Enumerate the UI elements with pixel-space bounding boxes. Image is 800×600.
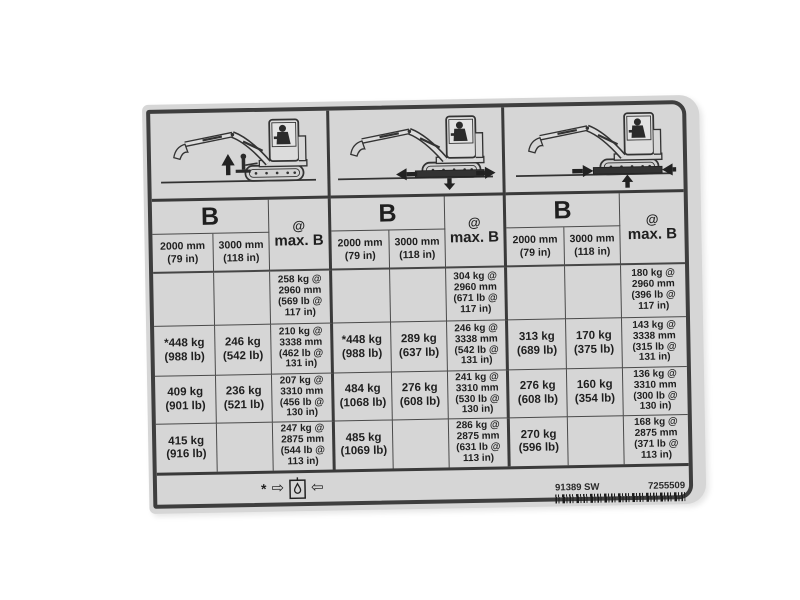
- max-b-capacity-cell: 304 kg @ 2960 mm (671 lb @ 117 in): [446, 267, 508, 321]
- capacity-cell: [214, 272, 271, 326]
- capacity-cell: 484 kg (1068 lb): [334, 372, 393, 421]
- footnote: * ⇨ ⇦: [261, 476, 324, 499]
- capacity-table: B @ max. B 2000 mm (79 in) 3000 mm (118 …: [150, 104, 688, 473]
- b-header: B: [331, 196, 446, 231]
- capacity-cell: *448 kg (988 lb): [333, 322, 392, 373]
- max-b-capacity-cell: 180 kg @ 2960 mm (396 lb @ 117 in): [621, 264, 686, 318]
- max-b-label: max. B: [450, 229, 499, 246]
- label-frame: B @ max. B 2000 mm (79 in) 3000 mm (118 …: [146, 100, 693, 509]
- lift-capacity-label: B @ max. B 2000 mm (79 in) 3000 mm (118 …: [142, 95, 706, 514]
- max-b-capacity-cell: 136 kg @ 3310 mm (300 lb @ 130 in): [623, 367, 688, 416]
- at-symbol: @: [468, 215, 481, 230]
- max-b-capacity-cell: 241 kg @ 3310 mm (530 lb @ 130 in): [448, 370, 510, 419]
- max-b-header: @ max. B: [445, 195, 507, 268]
- column-header-3000mm: 3000 mm (118 in): [213, 233, 270, 273]
- column-header-2000mm: 2000 mm (79 in): [152, 234, 214, 274]
- capacity-cell: 485 kg (1069 lb): [335, 420, 394, 469]
- asterisk-footnote-marker: *: [261, 480, 267, 496]
- excavator-diagram-blade-raised: [150, 111, 331, 202]
- max-b-label: max. B: [274, 233, 323, 250]
- capacity-cell: 276 kg (608 lb): [509, 369, 568, 418]
- at-symbol: @: [646, 212, 659, 227]
- barcode: [555, 492, 685, 503]
- capacity-cell: [217, 423, 274, 472]
- max-b-capacity-cell: 258 kg @ 2960 mm (569 lb @ 117 in): [270, 271, 333, 325]
- max-b-capacity-cell: 207 kg @ 3310 mm (456 lb @ 130 in): [272, 374, 335, 423]
- capacity-cell: [568, 416, 625, 465]
- capacity-cell: *448 kg (988 lb): [154, 326, 216, 377]
- column-header-2000mm: 2000 mm (79 in): [331, 230, 390, 270]
- capacity-cell: 415 kg (916 lb): [156, 424, 218, 473]
- column-header-3000mm: 3000 mm (118 in): [389, 229, 446, 269]
- max-b-header: @ max. B: [269, 199, 332, 272]
- at-symbol: @: [292, 219, 305, 234]
- arrow-left-icon: ⇦: [311, 480, 324, 495]
- part-number-block: 91389 SW 7255509: [555, 481, 685, 504]
- max-b-label: max. B: [628, 226, 677, 243]
- max-b-capacity-cell: 286 kg @ 2875 mm (631 lb @ 113 in): [449, 418, 511, 467]
- capacity-cell: [332, 269, 391, 323]
- max-b-capacity-cell: 246 kg @ 3338 mm (542 lb @ 131 in): [447, 320, 509, 371]
- capacity-cell: [390, 268, 447, 322]
- column-header-2000mm: 2000 mm (79 in): [506, 227, 565, 267]
- capacity-cell: [393, 419, 450, 468]
- max-b-capacity-cell: 168 kg @ 2875 mm (371 lb @ 113 in): [624, 415, 689, 464]
- max-b-capacity-cell: 247 kg @ 2875 mm (544 lb @ 113 in): [273, 422, 336, 471]
- excavator-lift-over-side-blade-up-icon: [505, 106, 682, 190]
- excavator-lift-over-side-blade-down-icon: [330, 109, 501, 193]
- arrow-right-icon: ⇨: [271, 480, 284, 495]
- max-b-capacity-cell: 210 kg @ 3338 mm (462 lb @ 131 in): [271, 324, 334, 375]
- capacity-cell: [565, 265, 622, 319]
- max-b-header: @ max. B: [620, 192, 685, 265]
- column-header-3000mm: 3000 mm (118 in): [564, 226, 621, 266]
- capacity-cell: 289 kg (637 lb): [391, 321, 448, 372]
- oil-drop-in-box-icon: [289, 477, 306, 499]
- capacity-cell: 313 kg (689 lb): [508, 319, 567, 370]
- b-header: B: [506, 193, 621, 228]
- capacity-cell: 270 kg (596 lb): [510, 417, 569, 466]
- capacity-cell: 246 kg (542 lb): [215, 325, 272, 376]
- part-number-left: 91389 SW: [555, 482, 600, 494]
- excavator-diagram-blade-down: [329, 107, 506, 198]
- capacity-cell: 160 kg (354 lb): [567, 368, 624, 417]
- capacity-cell: 409 kg (901 lb): [155, 376, 217, 425]
- capacity-cell: 170 kg (375 lb): [566, 318, 623, 369]
- b-header: B: [152, 200, 270, 235]
- excavator-lift-over-front-blade-raised-icon: [151, 113, 326, 197]
- capacity-cell: 276 kg (608 lb): [392, 371, 449, 420]
- capacity-cell: [153, 273, 215, 327]
- part-number-right: 7255509: [648, 481, 685, 493]
- excavator-diagram-blade-up: [504, 104, 684, 195]
- capacity-cell: [507, 266, 566, 320]
- capacity-cell: 236 kg (521 lb): [216, 375, 273, 424]
- max-b-capacity-cell: 143 kg @ 3338 mm (315 lb @ 131 in): [622, 317, 687, 368]
